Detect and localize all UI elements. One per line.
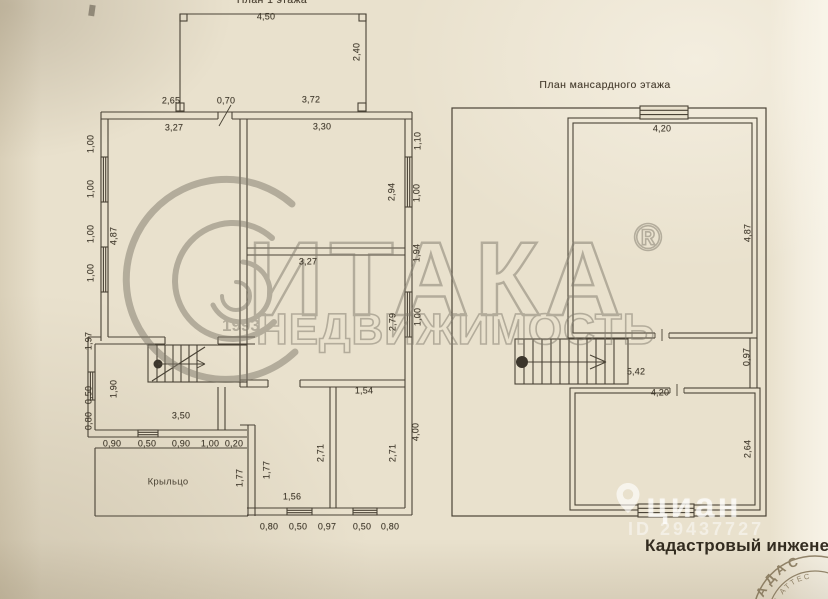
dimension-label: 0,50 — [85, 386, 94, 404]
dimension-label: 2,71 — [317, 444, 326, 462]
dimension-label: 1,00 — [87, 264, 96, 282]
room-label-porch: Крыльцо — [148, 477, 189, 487]
dimension-label: 2,94 — [388, 183, 397, 201]
dimension-label: 4,50 — [257, 13, 275, 22]
location-pin-icon — [613, 480, 643, 516]
floor2-title: План мансардного этажа — [539, 80, 670, 92]
itaka-sub-text: НЕДВИЖИМОСТЬ — [256, 305, 655, 354]
dimension-label: 2,71 — [389, 444, 398, 462]
dimension-label: 1,90 — [110, 380, 119, 398]
dimension-label: 0,97 — [743, 348, 752, 366]
dimension-label: 1,00 — [201, 440, 219, 449]
dimension-label: 0,90 — [103, 440, 121, 449]
dimension-label: 1,10 — [414, 132, 423, 150]
dimension-label: 1,77 — [263, 461, 272, 479]
dimension-label: 5,42 — [627, 368, 645, 377]
dimension-label: 2,65 — [162, 97, 180, 106]
dimension-label: 0,50 — [353, 523, 371, 532]
dimension-label: 1,00 — [413, 184, 422, 202]
dimension-label: 3,27 — [299, 258, 317, 267]
dimension-label: 0,50 — [289, 523, 307, 532]
dimension-label: 0,70 — [217, 97, 235, 106]
dimension-label: 1,77 — [236, 469, 245, 487]
scanned-floorplan-page: ИТАКА ® 1993 НЕДВИЖИМОСТЬ КАДАСТР АЯ АТТ… — [0, 0, 828, 599]
floor1-title: План 1 этажа — [237, 0, 307, 7]
dimension-label: 2,64 — [744, 440, 753, 458]
dimension-label: 1,56 — [283, 493, 301, 502]
dimension-label: 3,30 — [313, 123, 331, 132]
dimension-label: 4,20 — [651, 389, 669, 398]
floor1-terrace — [176, 14, 366, 112]
dimension-label: 1,00 — [87, 135, 96, 153]
dimension-label: 0,90 — [172, 440, 190, 449]
dimension-label: 3,50 — [172, 412, 190, 421]
dimension-label: 0,50 — [138, 440, 156, 449]
itaka-watermark: ИТАКА ® 1993 НЕДВИЖИМОСТЬ — [126, 179, 662, 379]
stamp-seal: КАДАСТР АЯ АТТЕСТ КП — [748, 553, 828, 599]
dimension-label: 1,00 — [414, 308, 423, 326]
dimension-label: 4,20 — [653, 125, 671, 134]
dimension-label: 1,94 — [413, 244, 422, 262]
cadastral-engineer-label: Кадастровый инженер — [645, 536, 828, 556]
cian-watermark: циан — [646, 488, 742, 523]
dimension-label: 3,72 — [302, 96, 320, 105]
dimension-label: 4,87 — [744, 224, 753, 242]
registered-mark: ® — [634, 217, 662, 259]
dimension-label: 0,80 — [85, 412, 94, 430]
dimension-label: 0,80 — [381, 523, 399, 532]
dimension-label: 1,54 — [355, 387, 373, 396]
dimension-label: 0,80 — [260, 523, 278, 532]
dimension-label: 1,97 — [85, 332, 94, 350]
dimension-label: 4,87 — [110, 227, 119, 245]
photo-artifact — [88, 5, 95, 17]
dimension-label: 2,40 — [353, 43, 362, 61]
floor2-door-openings — [655, 329, 684, 396]
dimension-label: 1,00 — [87, 225, 96, 243]
dimension-label: 2,79 — [389, 313, 398, 331]
itaka-year-text: 1993 — [222, 316, 260, 335]
dimension-label: 0,20 — [225, 440, 243, 449]
dimension-label: 1,00 — [87, 180, 96, 198]
dimension-label: 3,27 — [165, 124, 183, 133]
dimension-label: 4,00 — [412, 423, 421, 441]
dimension-label: 0,97 — [318, 523, 336, 532]
